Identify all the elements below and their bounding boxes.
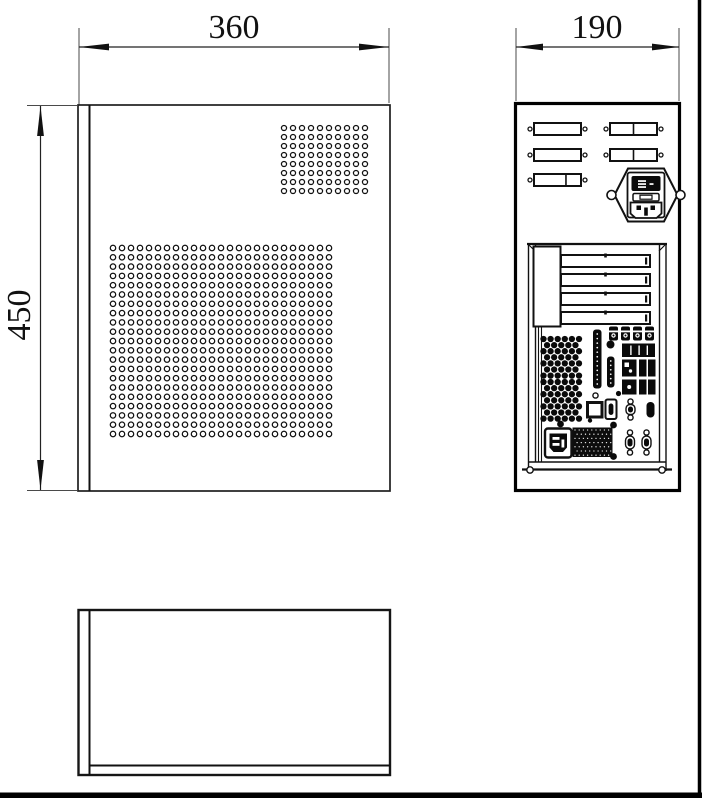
dimension-side-width: 360 <box>79 9 389 105</box>
dim-label-side-width: 360 <box>209 9 260 46</box>
lan-port <box>622 360 637 377</box>
bottom-view <box>79 610 391 775</box>
usb-port <box>639 360 647 377</box>
mounting-dot <box>616 391 621 396</box>
usb-port <box>648 380 656 395</box>
screw-dot <box>557 421 564 428</box>
io-screw-bottom-left <box>527 467 533 473</box>
frame-bottom-border <box>0 793 702 799</box>
psu-ac-inlet <box>545 429 572 458</box>
fuse-drawer-handle <box>640 195 652 199</box>
screw-dot <box>610 453 617 460</box>
dimension-rear-width: 190 <box>516 9 679 101</box>
mini-connector <box>647 402 655 418</box>
screw-dot <box>610 422 617 429</box>
psu-bracket <box>534 247 561 327</box>
mounting-dot <box>607 341 615 349</box>
dc-jack <box>588 403 603 418</box>
usb-port <box>639 380 647 395</box>
c14-pin-right <box>651 206 656 211</box>
dimension-side-height: 450 <box>1 106 77 491</box>
usb-port <box>648 360 656 377</box>
power-module-screw-right <box>676 191 685 200</box>
c14-pin-earth <box>644 208 648 216</box>
usb-connector-tongue <box>609 404 614 416</box>
mounting-dot <box>588 418 592 422</box>
rear-view <box>516 104 686 491</box>
dim-label-rear-width: 190 <box>572 9 623 46</box>
drawing-sheet: 360 190 450 <box>0 0 702 800</box>
power-module-screw-left <box>607 191 616 200</box>
engineering-drawing: 360 190 450 <box>0 0 702 800</box>
dim-label-side-height: 450 <box>1 290 38 341</box>
screw-hole <box>593 393 598 398</box>
c14-pin-left <box>637 206 642 211</box>
serial-port <box>626 399 635 420</box>
io-screw-bottom-right <box>659 467 665 473</box>
side-view <box>78 105 390 491</box>
bottom-panel-outline <box>79 610 391 775</box>
